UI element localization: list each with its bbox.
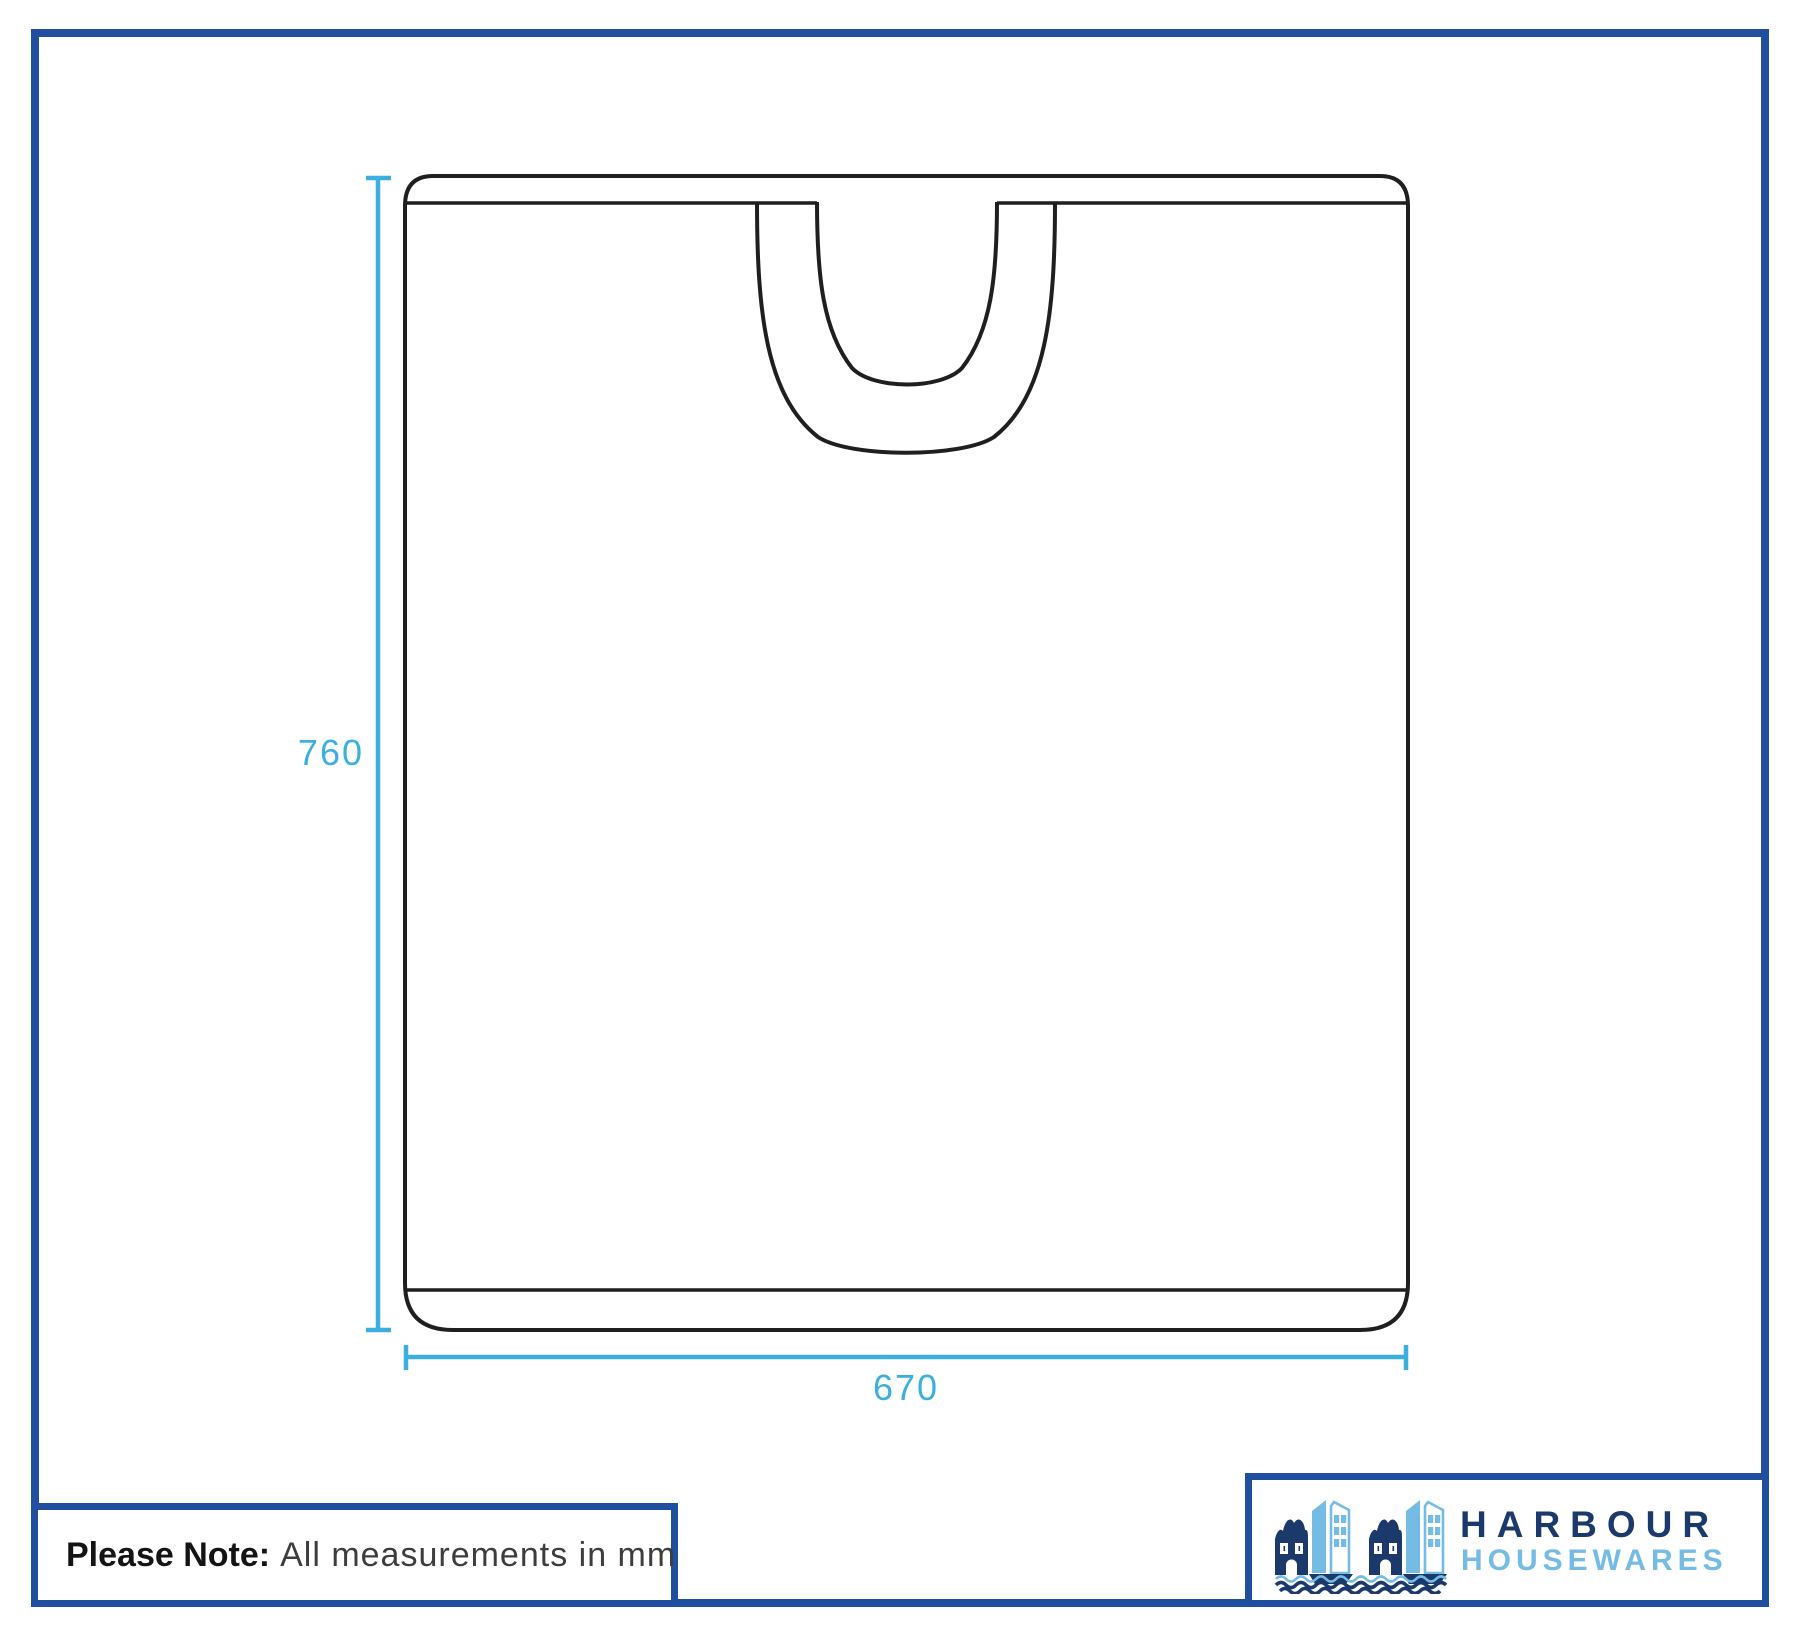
logo-brand-subname: HOUSEWARES	[1461, 1546, 1728, 1576]
harbour-scene-group-1	[1275, 1500, 1353, 1584]
diagram-page: 760 670 Please Note: All measurements in…	[0, 0, 1800, 1638]
logo-brand-name: HARBOUR	[1460, 1506, 1719, 1543]
container-silhouette	[405, 176, 1408, 1330]
harbour-houses-boats-waves-icon	[1274, 1496, 1456, 1594]
note-prefix-label: Please Note:	[66, 1536, 270, 1575]
harbour-housewares-logo: HARBOUR HOUSEWARES	[1245, 1473, 1769, 1607]
width-dimension-label: 670	[846, 1366, 966, 1410]
handle-inner-outline	[817, 202, 997, 385]
height-dimension-line	[366, 178, 391, 1330]
handle-outer-outline	[757, 202, 1055, 453]
measurements-note-box: Please Note: All measurements in mm	[31, 1503, 678, 1607]
harbour-scene-group-2	[1369, 1500, 1447, 1584]
height-dimension-label: 760	[250, 731, 364, 775]
note-text: All measurements in mm	[280, 1536, 676, 1575]
